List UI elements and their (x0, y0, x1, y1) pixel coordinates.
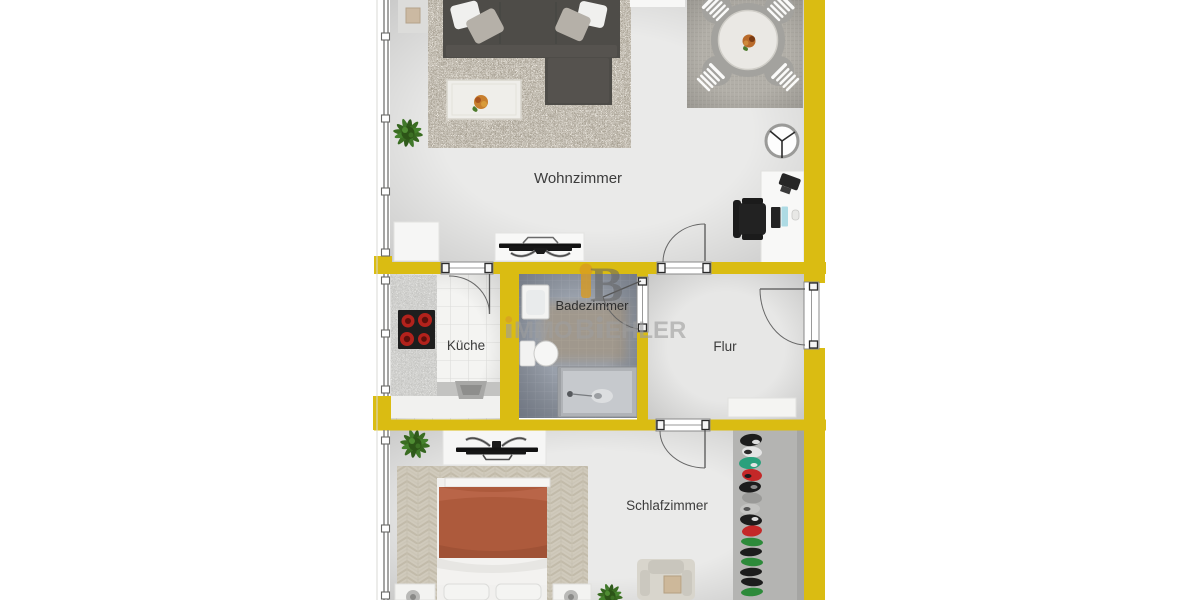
svg-text:Flur: Flur (713, 339, 737, 354)
svg-text:Wohnzimmer: Wohnzimmer (534, 170, 622, 187)
svg-text:B: B (590, 256, 623, 312)
svg-text:Küche: Küche (447, 338, 485, 353)
svg-text:MMO: MMO (514, 317, 573, 344)
svg-text:EHLER: EHLER (605, 317, 686, 344)
svg-text:Schlafzimmer: Schlafzimmer (626, 498, 708, 513)
svg-text:B: B (575, 314, 595, 345)
